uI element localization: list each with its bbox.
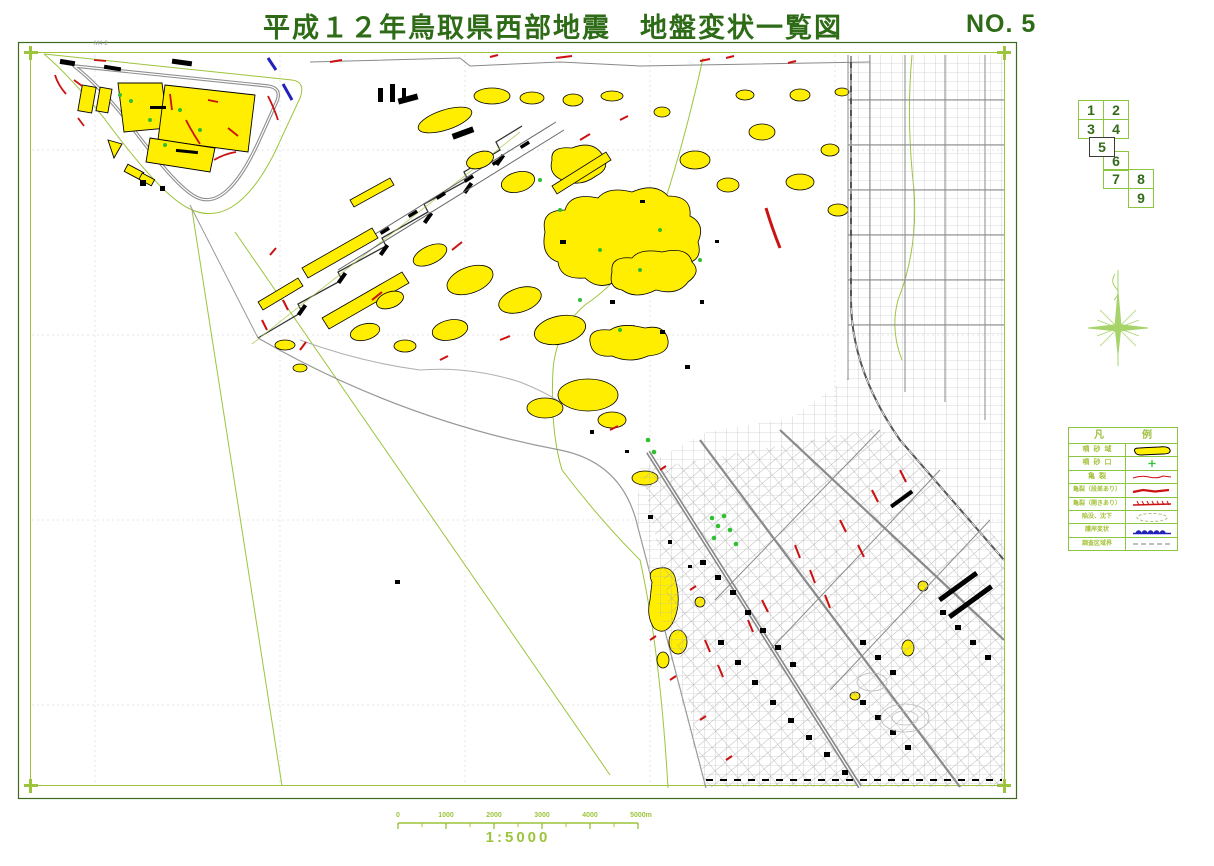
- legend-row-crack-step: 亀裂（段差あり）: [1069, 484, 1177, 497]
- index-cell-9: 9: [1128, 188, 1154, 208]
- index-cell-3: 3: [1078, 119, 1104, 139]
- index-cell-5-current: 5: [1089, 137, 1115, 157]
- scale-tick-label: 3000: [534, 812, 550, 819]
- legend-row-seawall: 護岸変状: [1069, 524, 1177, 537]
- index-cell-2: 2: [1103, 100, 1129, 120]
- sand-boil-area-icon: [1126, 444, 1177, 456]
- legend-row-survey-boundary: 調査区域界: [1069, 538, 1177, 550]
- scale-ratio: 1:5000: [486, 829, 551, 846]
- legend-label: 陥没、沈下: [1069, 511, 1126, 523]
- crack-with-step-icon: [1126, 484, 1177, 496]
- map-sheet-label: M4-2: [94, 41, 108, 47]
- legend-row-sand-boil-vent: 噴砂口: [1069, 457, 1177, 470]
- map-canvas: [0, 0, 1214, 866]
- legend-label: 亀裂（段差あり）: [1069, 484, 1126, 496]
- crack-with-opening-icon: [1126, 498, 1177, 510]
- legend-label: 調査区域界: [1069, 538, 1126, 550]
- map-sheet-page: 平成１２年鳥取県西部地震 地盤変状一覧図 NO. 5 M4-2 1 2 3 4 …: [0, 0, 1214, 866]
- index-cell-7: 7: [1103, 169, 1129, 189]
- scale-tick-label: 0: [396, 812, 400, 819]
- legend-label: 亀裂: [1069, 471, 1126, 483]
- index-cell-1: 1: [1078, 100, 1104, 120]
- sheet-number: NO. 5: [966, 10, 1036, 39]
- depression-subsidence-icon: [1126, 511, 1177, 523]
- compass-rose-icon: [1085, 262, 1155, 374]
- legend-label: 噴砂域: [1069, 444, 1126, 456]
- legend-row-depression: 陥没、沈下: [1069, 511, 1177, 524]
- legend-row-crack-opening: 亀裂（開きあり）: [1069, 498, 1177, 511]
- scale-tick-label: 4000: [582, 812, 598, 819]
- legend-row-sand-boil-area: 噴砂域: [1069, 444, 1177, 457]
- scale-tick-label: 1000: [438, 812, 454, 819]
- legend-label: 噴砂口: [1069, 457, 1126, 469]
- legend-label: 亀裂（開きあり）: [1069, 498, 1126, 510]
- survey-area-boundary-icon: [1126, 538, 1177, 550]
- page-title: 平成１２年鳥取県西部地震 地盤変状一覧図: [263, 6, 843, 45]
- index-cell-4: 4: [1103, 119, 1129, 139]
- seawall-deformation-icon: [1126, 524, 1177, 536]
- sand-boil-vent-icon: [1126, 457, 1177, 469]
- pier-area: [44, 54, 302, 338]
- crack-icon: [1126, 471, 1177, 483]
- scale-tick-label: 2000: [486, 812, 502, 819]
- index-cell-8: 8: [1128, 169, 1154, 189]
- legend-title: 凡 例: [1069, 428, 1177, 444]
- legend-row-crack: 亀裂: [1069, 471, 1177, 484]
- scale-tick-label: 5000m: [630, 812, 652, 819]
- legend-box: 凡 例 噴砂域 噴砂口 亀裂 亀裂（段差あり） 亀裂（開: [1068, 427, 1178, 551]
- legend-label: 護岸変状: [1069, 524, 1126, 536]
